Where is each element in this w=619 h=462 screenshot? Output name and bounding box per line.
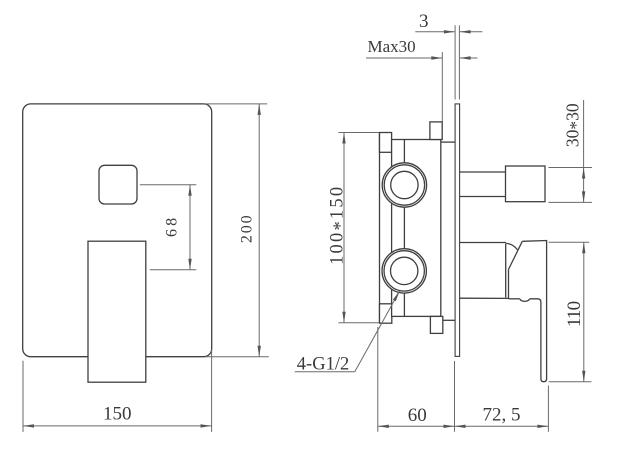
svg-text:150: 150 — [103, 404, 132, 425]
svg-text:110: 110 — [564, 301, 585, 327]
svg-text:Max30: Max30 — [368, 37, 416, 56]
svg-text:68: 68 — [163, 215, 180, 237]
svg-text:3: 3 — [419, 11, 429, 32]
svg-text:30*30: 30*30 — [562, 103, 586, 147]
svg-text:100*150: 100*150 — [327, 185, 351, 265]
svg-text:60: 60 — [408, 405, 427, 426]
svg-text:4-G1/2: 4-G1/2 — [297, 354, 349, 374]
svg-text:72, 5: 72, 5 — [483, 405, 521, 426]
svg-text:200: 200 — [238, 213, 255, 243]
